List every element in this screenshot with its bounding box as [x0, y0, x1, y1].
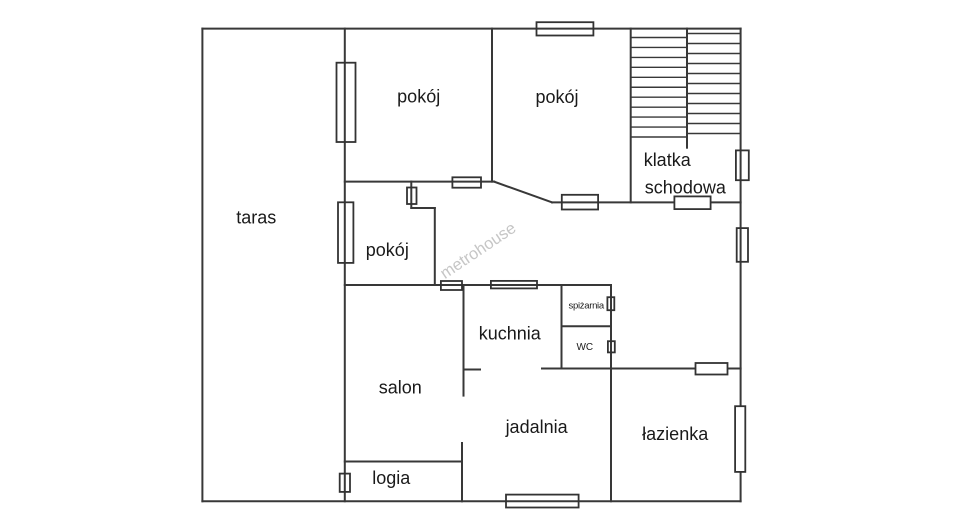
- svg-text:logia: logia: [372, 468, 411, 488]
- svg-text:spiżarnia: spiżarnia: [569, 300, 605, 311]
- svg-text:taras: taras: [236, 207, 276, 227]
- svg-text:pokój: pokój: [397, 86, 440, 106]
- svg-text:metrohouse: metrohouse: [437, 219, 519, 283]
- svg-text:jadalnia: jadalnia: [505, 417, 569, 437]
- svg-text:pokój: pokój: [535, 87, 578, 107]
- svg-text:WC: WC: [576, 342, 593, 353]
- svg-text:pokój: pokój: [366, 240, 409, 260]
- svg-text:kuchnia: kuchnia: [479, 323, 542, 343]
- svg-text:klatka: klatka: [644, 150, 692, 170]
- svg-text:salon: salon: [379, 378, 422, 398]
- svg-text:schodowa: schodowa: [645, 178, 727, 198]
- svg-text:łazienka: łazienka: [642, 424, 709, 444]
